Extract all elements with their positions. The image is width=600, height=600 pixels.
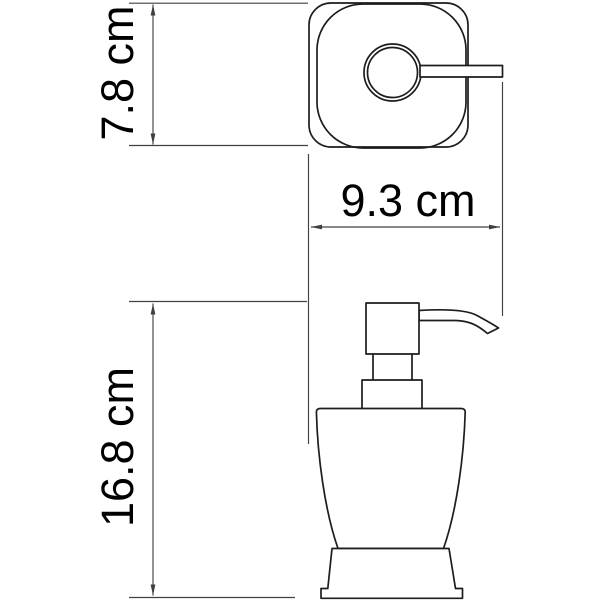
- dispenser-technical-drawing: 7.8 cm 9.3 cm 16.8 cm: [0, 0, 600, 600]
- pump-spout: [419, 310, 499, 334]
- pump-collar: [362, 380, 422, 409]
- pump-head: [366, 303, 419, 354]
- top-view: [309, 3, 503, 148]
- drawing-canvas: 7.8 cm 9.3 cm 16.8 cm: [0, 0, 600, 600]
- bottle-base: [321, 549, 463, 599]
- pump-ring-outer-icon: [364, 44, 421, 101]
- front-view: [316, 303, 498, 598]
- width-label: 9.3 cm: [340, 175, 475, 226]
- depth-label: 7.8 cm: [92, 5, 143, 140]
- dimension-depth: 7.8 cm: [92, 3, 308, 145]
- bottle-body: [316, 409, 465, 549]
- dimension-height: 16.8 cm: [92, 302, 307, 598]
- top-view-spout: [420, 66, 503, 78]
- pump-ring-inner-icon: [368, 48, 418, 98]
- height-label: 16.8 cm: [92, 367, 143, 527]
